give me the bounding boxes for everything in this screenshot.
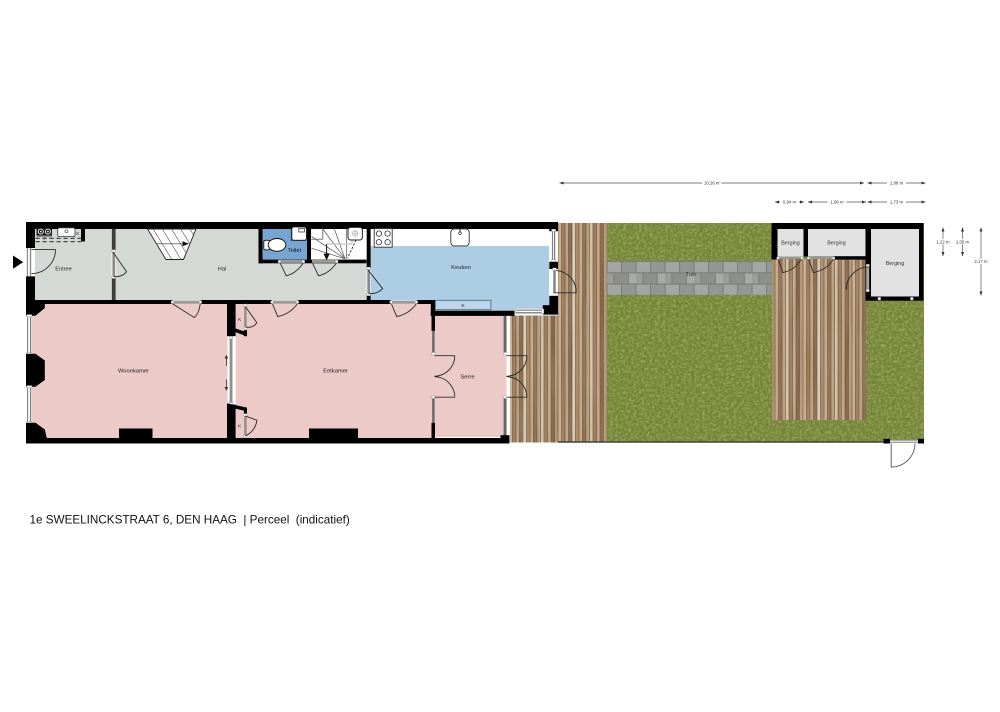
svg-text:K: K <box>76 231 79 236</box>
svg-text:0,94 m: 0,94 m <box>783 200 797 205</box>
svg-text:Entree: Entree <box>55 266 71 272</box>
svg-text:1,05 m: 1,05 m <box>956 239 970 244</box>
svg-text:Keuken: Keuken <box>451 265 471 271</box>
svg-text:Serre: Serre <box>460 374 474 380</box>
svg-text:1e SWEELINCKSTRAAT 6, DEN HAAG: 1e SWEELINCKSTRAAT 6, DEN HAAG | Perceel… <box>30 514 350 527</box>
svg-text:1,73 m: 1,73 m <box>890 200 904 205</box>
svg-text:Woonkamer: Woonkamer <box>118 368 149 374</box>
svg-text:1,96 m: 1,96 m <box>830 200 844 205</box>
svg-text:Eetkamer: Eetkamer <box>323 368 348 374</box>
svg-text:Berging: Berging <box>827 241 846 247</box>
svg-text:Tuin: Tuin <box>685 272 696 278</box>
svg-text:Hal: Hal <box>218 266 226 272</box>
svg-text:1,22 m: 1,22 m <box>936 239 950 244</box>
svg-text:2,17 m: 2,17 m <box>974 259 988 264</box>
svg-text:10,26 m: 10,26 m <box>704 181 720 186</box>
svg-text:1,98 m: 1,98 m <box>890 181 904 186</box>
svg-text:Berging: Berging <box>886 261 905 267</box>
svg-text:Berging: Berging <box>781 241 800 247</box>
svg-text:Toilet: Toilet <box>288 248 302 254</box>
